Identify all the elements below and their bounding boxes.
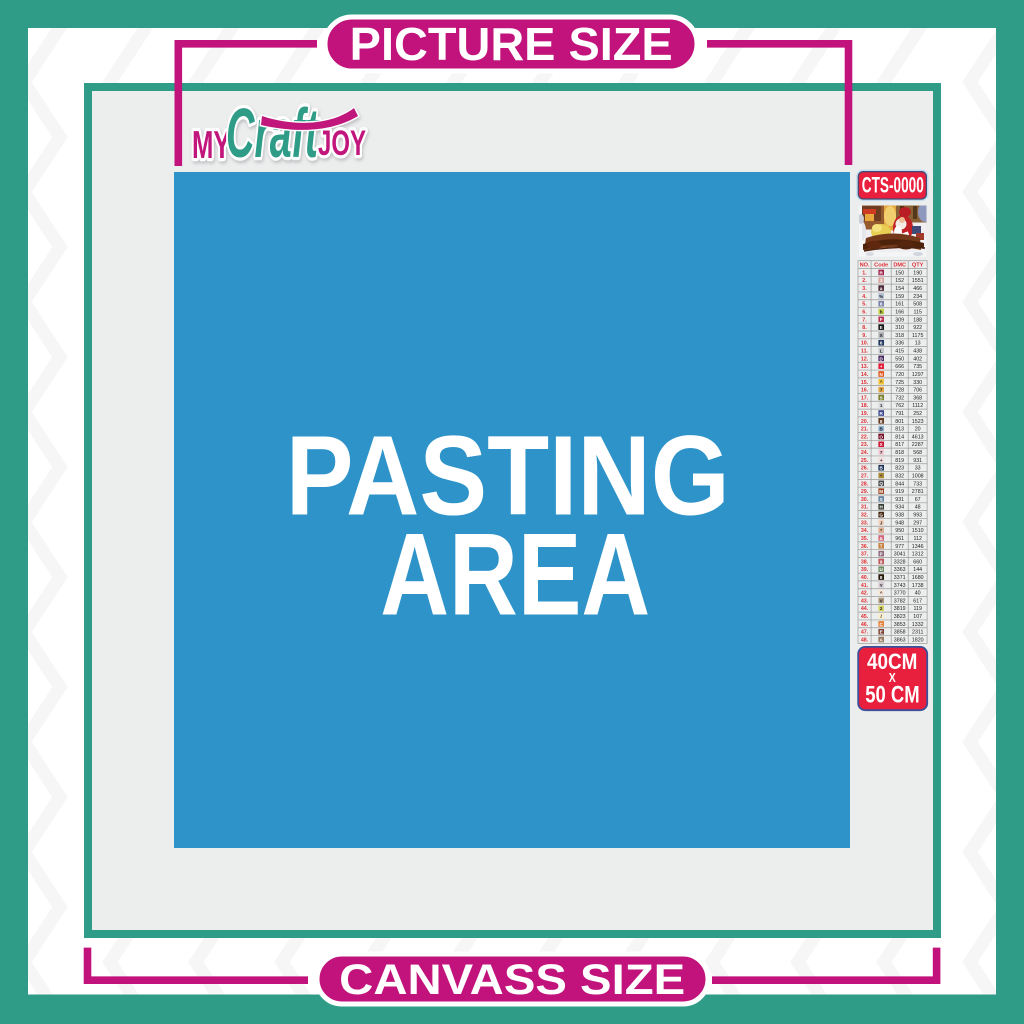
- svg-text:32.: 32.: [861, 513, 869, 519]
- svg-text:1: 1: [880, 403, 883, 408]
- svg-text:6.: 6.: [862, 309, 867, 315]
- svg-text:M: M: [879, 489, 883, 494]
- svg-text:15.: 15.: [861, 380, 869, 386]
- svg-text:330: 330: [913, 380, 922, 386]
- svg-text:67: 67: [915, 497, 921, 503]
- svg-text:31.: 31.: [861, 505, 869, 511]
- svg-text:791: 791: [895, 411, 904, 417]
- svg-text:438: 438: [913, 349, 922, 355]
- svg-text:^: ^: [880, 380, 883, 385]
- svg-text:1820: 1820: [912, 637, 924, 643]
- svg-text:725: 725: [895, 380, 904, 386]
- svg-text:762: 762: [895, 403, 904, 409]
- svg-text:*: *: [880, 528, 882, 533]
- svg-text:728: 728: [895, 388, 904, 394]
- svg-text:20: 20: [915, 427, 921, 433]
- svg-text:817: 817: [895, 442, 904, 448]
- svg-text:823: 823: [895, 466, 904, 472]
- svg-text:3853: 3853: [894, 622, 906, 628]
- svg-text:47.: 47.: [861, 630, 869, 636]
- svg-text:115: 115: [913, 309, 921, 315]
- svg-text:33.: 33.: [861, 520, 869, 526]
- svg-text:144: 144: [913, 567, 922, 573]
- svg-text:2781: 2781: [912, 489, 924, 495]
- svg-text:a: a: [880, 286, 883, 291]
- svg-text:^: ^: [880, 591, 883, 596]
- svg-text:38.: 38.: [861, 559, 869, 565]
- svg-text:Craft: Craft: [226, 94, 320, 172]
- svg-text:40.: 40.: [861, 575, 869, 581]
- svg-text:154: 154: [895, 286, 904, 292]
- svg-text:732: 732: [895, 395, 904, 401]
- svg-text:112: 112: [913, 536, 921, 542]
- svg-text:48.: 48.: [861, 637, 869, 643]
- svg-text:16.: 16.: [861, 388, 869, 394]
- svg-text:3823: 3823: [894, 614, 906, 620]
- svg-text:1175: 1175: [912, 333, 923, 339]
- svg-text:5.: 5.: [862, 302, 867, 308]
- svg-text:3863: 3863: [894, 637, 906, 643]
- svg-text:922: 922: [913, 325, 922, 331]
- svg-text:931: 931: [913, 458, 922, 464]
- svg-text:50 CM: 50 CM: [865, 682, 919, 709]
- svg-text:950: 950: [895, 528, 904, 534]
- svg-text:402: 402: [913, 356, 922, 362]
- svg-text:252: 252: [913, 411, 922, 417]
- svg-text:Q: Q: [879, 481, 883, 486]
- svg-text:36.: 36.: [861, 544, 869, 550]
- svg-text:1738: 1738: [912, 583, 924, 589]
- svg-text:22.: 22.: [861, 434, 869, 440]
- svg-text:7: 7: [880, 450, 883, 455]
- svg-text:CANVASS SIZE: CANVASS SIZE: [339, 956, 685, 1004]
- svg-text:938: 938: [895, 513, 904, 519]
- svg-text:107: 107: [913, 614, 922, 620]
- svg-text:PICTURE SIZE: PICTURE SIZE: [350, 18, 673, 70]
- svg-text:310: 310: [895, 325, 904, 331]
- svg-text:309: 309: [895, 317, 904, 323]
- svg-text:11.: 11.: [861, 349, 869, 355]
- svg-text:813: 813: [895, 427, 904, 433]
- svg-text:931: 931: [895, 497, 904, 503]
- svg-text:819: 819: [895, 458, 904, 464]
- svg-text:35.: 35.: [861, 536, 869, 542]
- svg-text:MY: MY: [192, 124, 231, 167]
- svg-text:QTY: QTY: [912, 263, 924, 269]
- svg-text:JOY: JOY: [318, 124, 366, 163]
- svg-text:617: 617: [913, 598, 922, 604]
- svg-text:6: 6: [880, 302, 883, 307]
- svg-text:8: 8: [880, 419, 883, 424]
- svg-text:832: 832: [895, 473, 904, 479]
- svg-text:F: F: [880, 317, 883, 322]
- svg-text:666: 666: [895, 364, 904, 370]
- svg-text:2287: 2287: [912, 442, 924, 448]
- svg-text:*: *: [880, 473, 882, 478]
- svg-text:21.: 21.: [861, 427, 869, 433]
- svg-text:948: 948: [895, 520, 904, 526]
- svg-text:43.: 43.: [861, 598, 869, 604]
- svg-text:466: 466: [913, 286, 922, 292]
- svg-text:E: E: [880, 630, 883, 635]
- svg-text:17.: 17.: [861, 395, 869, 401]
- svg-text:29.: 29.: [861, 489, 869, 495]
- svg-text:S: S: [880, 395, 883, 400]
- svg-text:159: 159: [895, 294, 904, 300]
- svg-text:9.: 9.: [862, 333, 867, 339]
- svg-text:+: +: [880, 458, 883, 463]
- svg-text:188: 188: [913, 317, 922, 323]
- svg-text:3041: 3041: [894, 552, 906, 558]
- svg-text:1332: 1332: [912, 622, 924, 628]
- svg-text:4613: 4613: [912, 434, 924, 440]
- svg-text:1680: 1680: [912, 575, 924, 581]
- svg-text:919: 919: [895, 489, 904, 495]
- svg-text:S: S: [880, 497, 883, 502]
- svg-text:508: 508: [913, 302, 922, 308]
- svg-text:3328: 3328: [894, 559, 906, 565]
- svg-text:Code: Code: [874, 263, 888, 269]
- svg-text:1523: 1523: [912, 419, 924, 425]
- svg-text:CTS-0000: CTS-0000: [862, 173, 924, 198]
- svg-text:DMC: DMC: [893, 263, 906, 269]
- svg-text:27.: 27.: [861, 473, 869, 479]
- svg-text:42.: 42.: [861, 591, 869, 597]
- svg-text:46.: 46.: [861, 622, 869, 628]
- svg-text:415: 415: [895, 349, 904, 355]
- svg-text:3371: 3371: [894, 575, 906, 581]
- svg-text:818: 818: [895, 450, 904, 456]
- svg-text:1510: 1510: [912, 528, 924, 534]
- svg-text:1551: 1551: [912, 278, 924, 284]
- svg-text:10.: 10.: [861, 341, 869, 347]
- svg-text:48: 48: [915, 505, 921, 511]
- svg-text:961: 961: [895, 536, 904, 542]
- svg-text:550: 550: [895, 356, 904, 362]
- svg-text:O: O: [879, 434, 883, 439]
- svg-text:318: 318: [895, 333, 904, 339]
- svg-text:568: 568: [913, 450, 922, 456]
- svg-text:150: 150: [895, 270, 904, 276]
- svg-text:G: G: [879, 512, 883, 517]
- svg-text:44.: 44.: [861, 606, 869, 612]
- svg-text:L: L: [880, 348, 883, 353]
- svg-text:13: 13: [915, 341, 921, 347]
- svg-text:Y: Y: [880, 583, 883, 588]
- svg-text:1312: 1312: [912, 552, 924, 558]
- svg-text:4.: 4.: [862, 294, 867, 300]
- svg-text:3770: 3770: [894, 591, 906, 597]
- svg-text:2.: 2.: [862, 278, 867, 284]
- svg-text:152: 152: [895, 278, 904, 284]
- svg-text:720: 720: [895, 372, 904, 378]
- svg-text:13.: 13.: [861, 364, 869, 370]
- svg-text:T: T: [880, 544, 883, 549]
- svg-text:297: 297: [913, 520, 922, 526]
- svg-text:P: P: [880, 552, 883, 557]
- svg-text:12.: 12.: [861, 356, 869, 362]
- svg-text:166: 166: [895, 309, 904, 315]
- svg-text:3363: 3363: [894, 567, 906, 573]
- svg-text:h: h: [880, 309, 883, 314]
- svg-text:41.: 41.: [861, 583, 869, 589]
- svg-text:25.: 25.: [861, 458, 869, 464]
- svg-text:8.: 8.: [862, 325, 867, 331]
- svg-text:3743: 3743: [894, 583, 906, 589]
- svg-text:34.: 34.: [861, 528, 869, 534]
- svg-text:26.: 26.: [861, 466, 869, 472]
- svg-text:19.: 19.: [861, 411, 869, 417]
- svg-text:844: 844: [895, 481, 904, 487]
- svg-text:7.: 7.: [862, 317, 867, 323]
- svg-text:814: 814: [895, 434, 904, 440]
- svg-text:161: 161: [895, 302, 904, 308]
- svg-text:1.: 1.: [862, 270, 867, 276]
- svg-text:9: 9: [880, 559, 883, 564]
- svg-text:735: 735: [913, 364, 922, 370]
- svg-text:8: 8: [880, 575, 883, 580]
- svg-text:40: 40: [915, 591, 921, 597]
- svg-text:1112: 1112: [912, 403, 923, 409]
- svg-text:3.: 3.: [862, 286, 867, 292]
- svg-text:234: 234: [913, 294, 922, 300]
- svg-text:45.: 45.: [861, 614, 869, 620]
- svg-text:119: 119: [913, 606, 921, 612]
- svg-text:190: 190: [913, 270, 922, 276]
- svg-text:37.: 37.: [861, 552, 869, 558]
- svg-text:3858: 3858: [894, 630, 906, 636]
- svg-text:23.: 23.: [861, 442, 869, 448]
- svg-text:14.: 14.: [861, 372, 869, 378]
- svg-text:7: 7: [880, 388, 883, 393]
- svg-text:AREA: AREA: [380, 509, 650, 640]
- svg-text:J: J: [880, 520, 883, 525]
- svg-text:660: 660: [913, 559, 922, 565]
- svg-text:1346: 1346: [912, 544, 924, 550]
- svg-text:18.: 18.: [861, 403, 869, 409]
- svg-text:3819: 3819: [894, 606, 906, 612]
- svg-text:733: 733: [913, 481, 922, 487]
- svg-text:%: %: [879, 294, 883, 299]
- svg-text:+: +: [880, 364, 883, 369]
- svg-text:993: 993: [913, 513, 922, 519]
- svg-text:1008: 1008: [912, 473, 924, 479]
- svg-text:706: 706: [913, 388, 922, 394]
- svg-text:336: 336: [895, 341, 904, 347]
- svg-text:934: 934: [895, 505, 904, 511]
- svg-text:801: 801: [895, 419, 904, 425]
- svg-text:24.: 24.: [861, 450, 869, 456]
- svg-text:3: 3: [880, 278, 883, 283]
- svg-text:39.: 39.: [861, 567, 869, 573]
- svg-text:2: 2: [880, 606, 883, 611]
- svg-text:E: E: [880, 325, 883, 330]
- svg-text:6: 6: [880, 341, 883, 346]
- svg-text:30.: 30.: [861, 497, 869, 503]
- svg-text:2311: 2311: [912, 630, 923, 636]
- svg-text:368: 368: [913, 395, 922, 401]
- svg-text:NO.: NO.: [860, 263, 870, 269]
- svg-text:33: 33: [915, 466, 921, 472]
- svg-text:28.: 28.: [861, 481, 869, 487]
- svg-text:1297: 1297: [912, 372, 924, 378]
- svg-text:20.: 20.: [861, 419, 869, 425]
- svg-text:977: 977: [895, 544, 904, 550]
- svg-text:3782: 3782: [894, 598, 906, 604]
